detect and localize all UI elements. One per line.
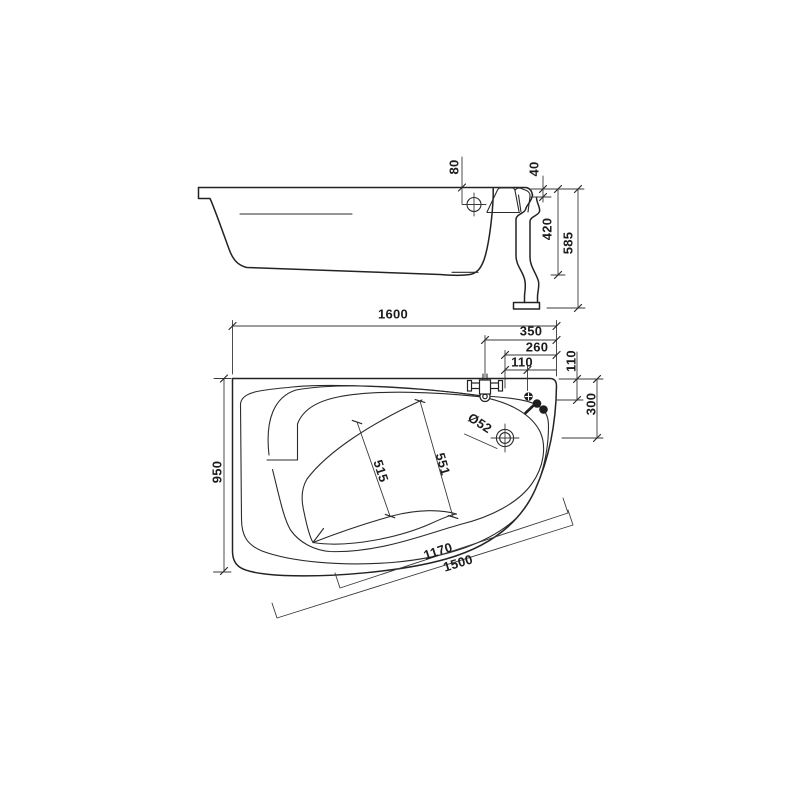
dim-label-40: 40	[527, 161, 542, 176]
dim-label-110-top: 110	[511, 355, 533, 370]
dim-label-110-right: 110	[564, 350, 579, 372]
control-knobs	[524, 392, 548, 414]
dim-label-1600: 1600	[378, 307, 408, 322]
side-elevation-view	[199, 157, 586, 312]
dim-label-350: 350	[520, 324, 543, 339]
dim-label-420: 420	[540, 218, 555, 241]
dim-label-585: 585	[561, 232, 576, 255]
dim-label-950: 950	[210, 461, 225, 484]
dim-label-260: 260	[526, 340, 549, 355]
dim-label-300: 300	[584, 393, 599, 416]
overflow-hole	[462, 193, 486, 216]
bathtub-drawing-linework	[0, 0, 800, 800]
plan-view	[214, 321, 604, 619]
dim-label-80: 80	[447, 159, 462, 174]
technical-drawing-page: 80 40 420 585 1600 350 260 110 110 300 9…	[0, 0, 800, 800]
